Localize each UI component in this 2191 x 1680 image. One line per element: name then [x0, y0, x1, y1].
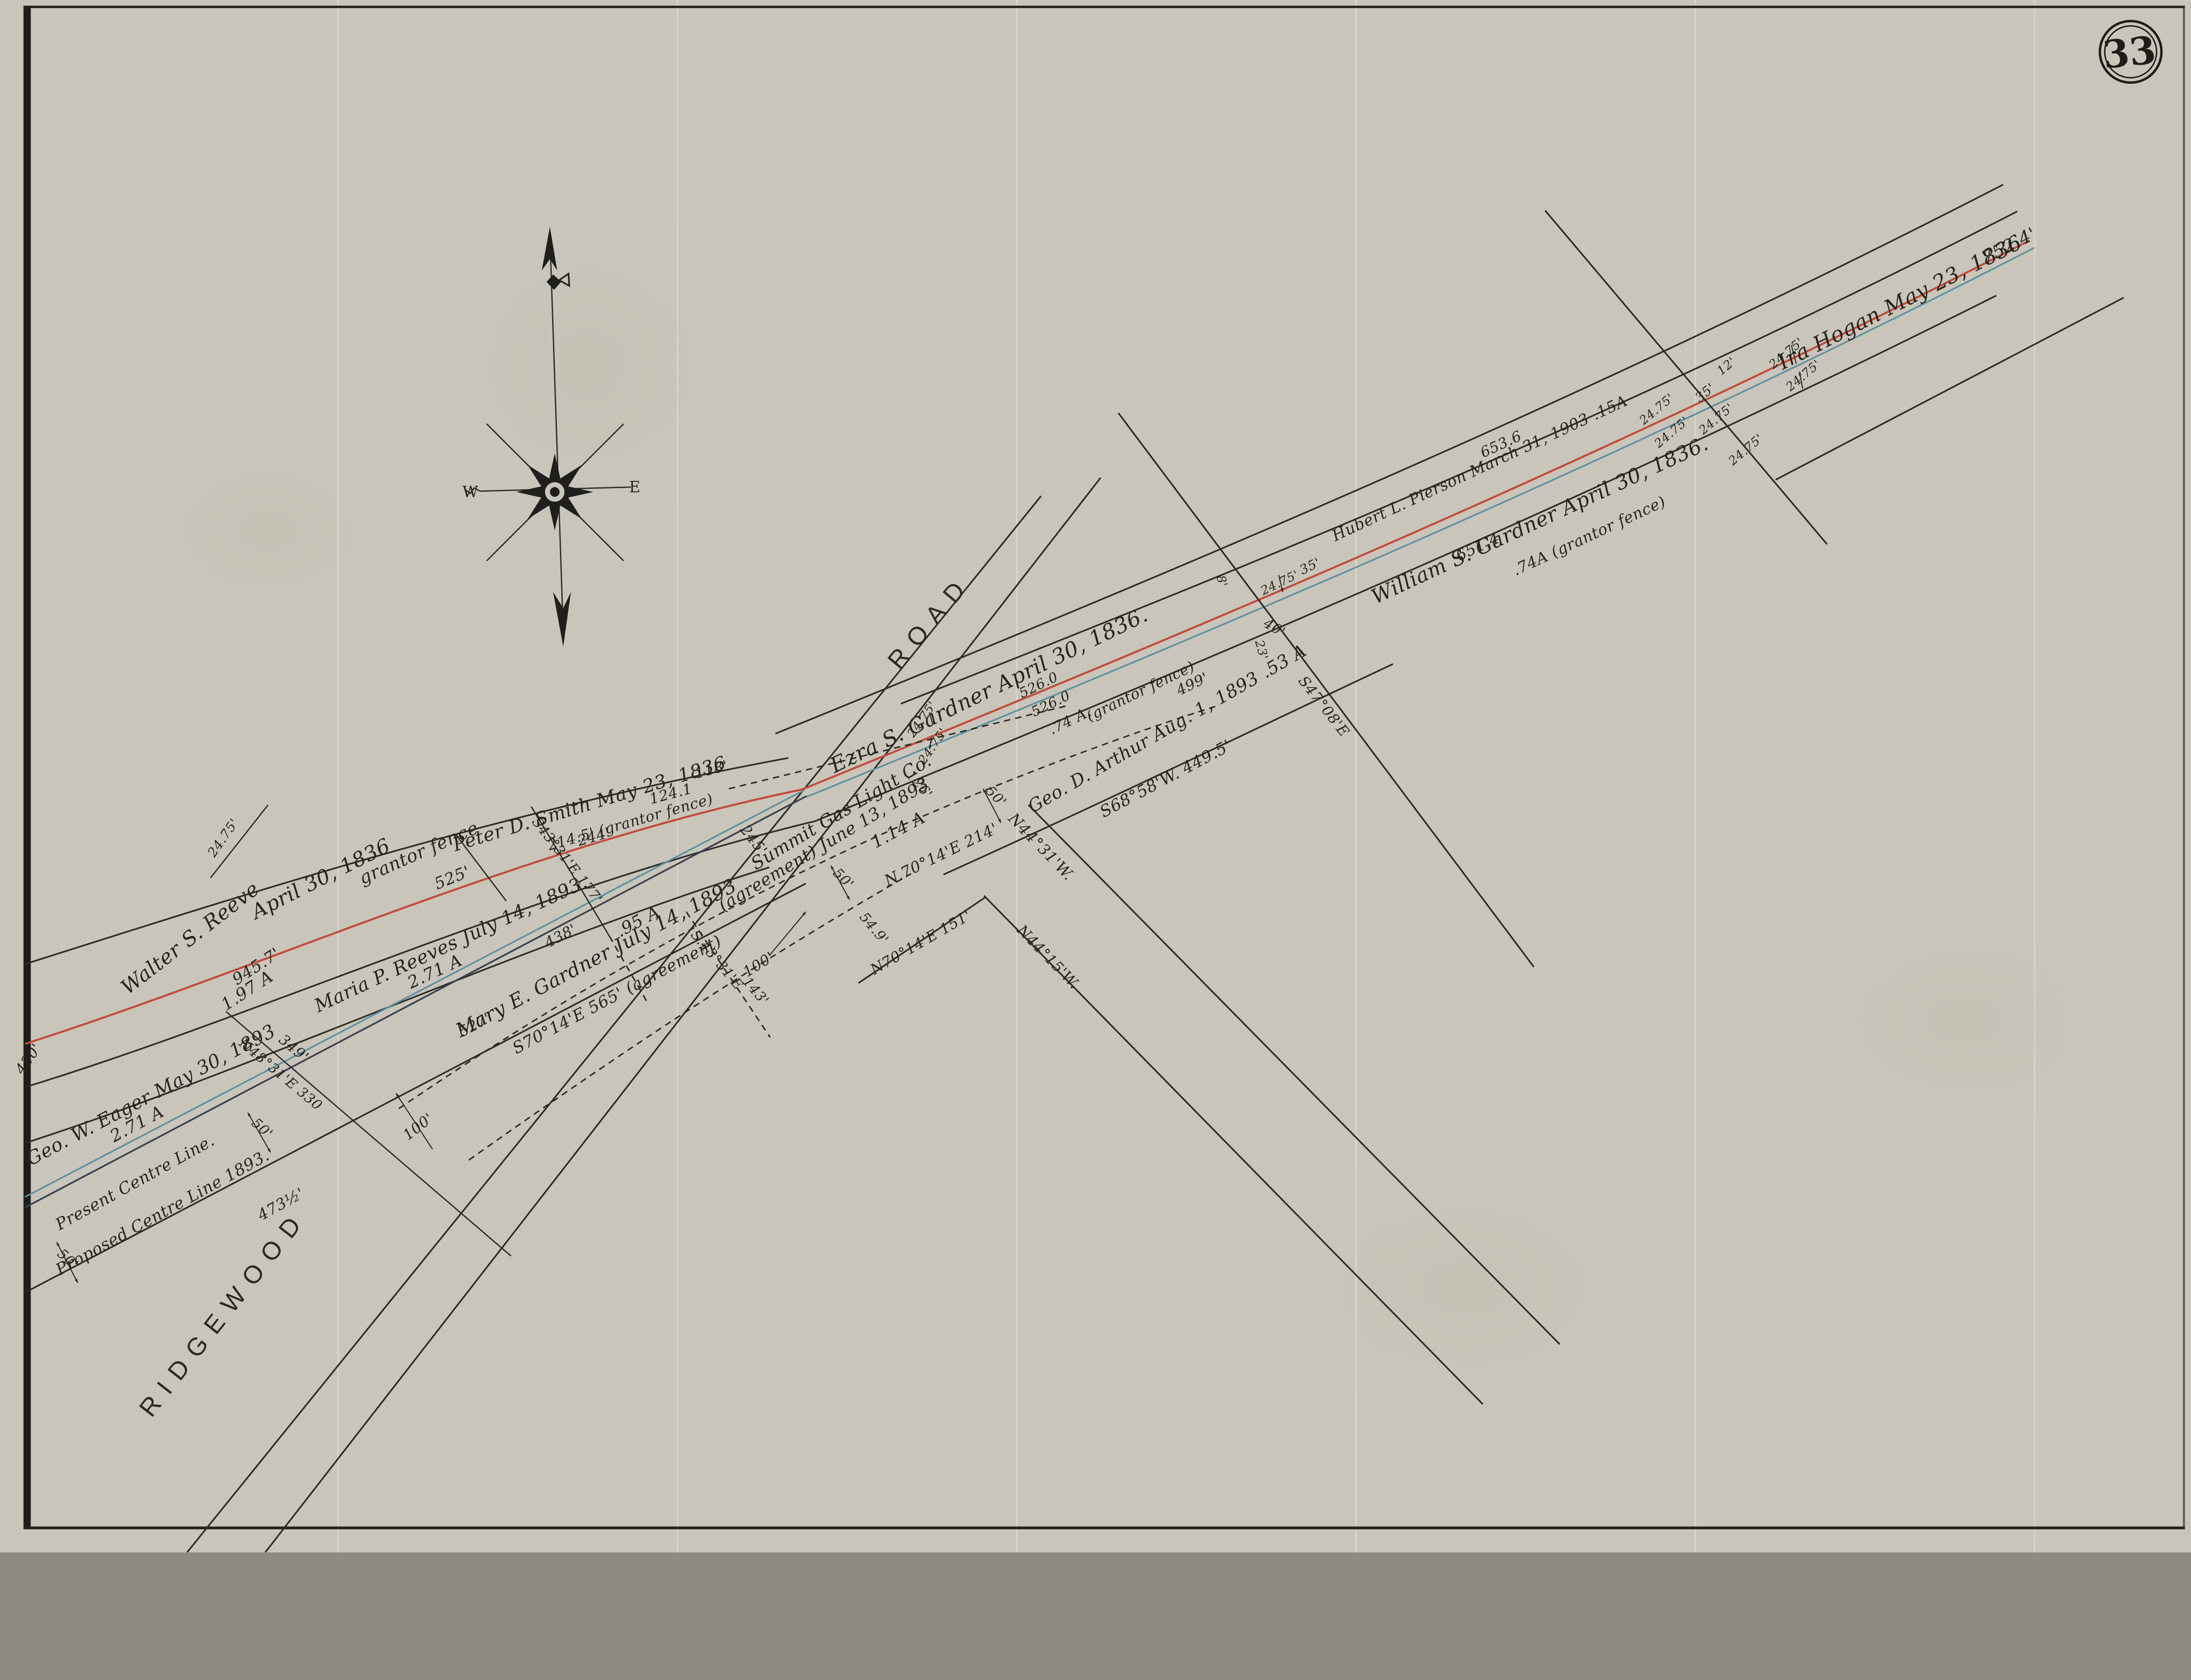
survey-map-sheet: 33 W E — [0, 0, 2191, 1552]
map-canvas: 33 W E — [0, 0, 2191, 1552]
border-left — [24, 6, 31, 1529]
border-top — [24, 6, 2185, 8]
border-bottom — [24, 1527, 2185, 1529]
border-right — [2183, 6, 2185, 1529]
compass-west-label: W — [462, 483, 479, 501]
sheet-number: 33 — [2101, 28, 2158, 78]
compass-east-label: E — [629, 478, 641, 496]
sheet-number-badge: 33 — [2100, 21, 2161, 82]
compass-hub-dot — [550, 487, 560, 497]
